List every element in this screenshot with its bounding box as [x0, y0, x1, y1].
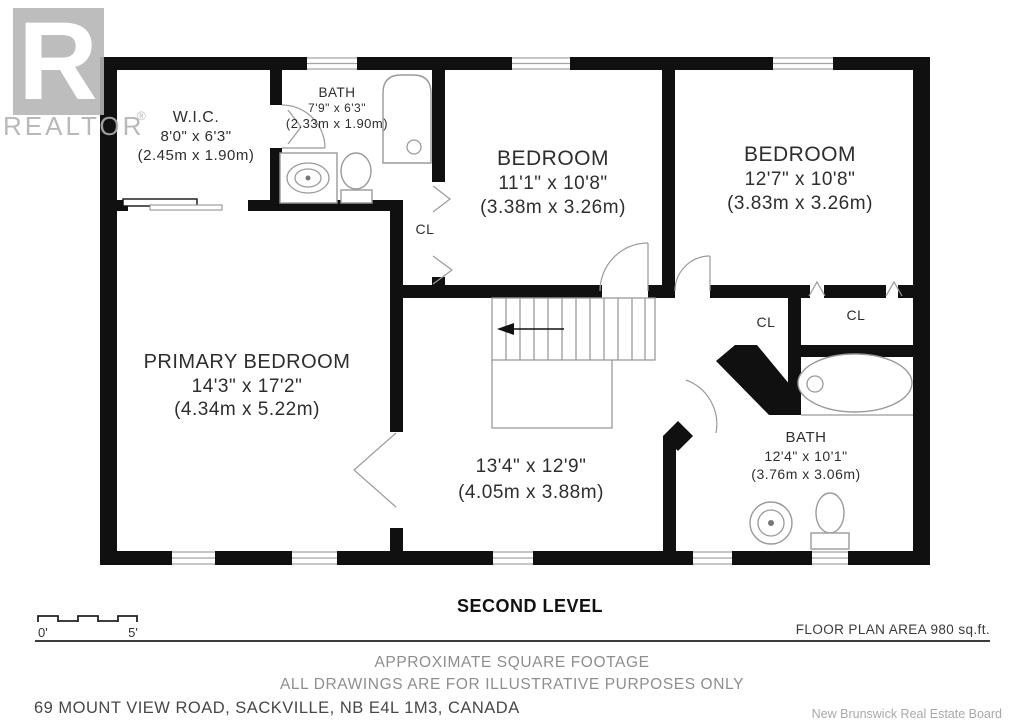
level-title: SECOND LEVEL [457, 596, 603, 616]
primary-imperial: 14'3" x 17'2" [192, 376, 303, 397]
room-label-primary: PRIMARY BEDROOM 14'3" x 17'2" (4.34m x 5… [144, 351, 351, 420]
bedroom-right-imperial: 12'7" x 10'8" [745, 169, 856, 190]
wic-imperial: 8'0" x 6'3" [160, 128, 231, 145]
toilet-top-icon [341, 153, 372, 203]
bedroom-mid-metric: (3.38m x 3.26m) [480, 197, 626, 218]
room-label-bath-top: BATH 7'9" x 6'3" (2.33m x 1.90m) [286, 85, 388, 131]
bedroom-mid-name: BEDROOM [497, 147, 609, 170]
closet-label: CL [416, 221, 435, 237]
sink-main-icon [750, 502, 792, 544]
hall-metric: (4.05m x 3.88m) [458, 482, 604, 503]
sink-top-icon [280, 153, 337, 203]
wic-metric: (2.45m x 1.90m) [138, 147, 255, 164]
sliding-door-icon [123, 199, 222, 210]
room-label-bedroom-right: BEDROOM 12'7" x 10'8" (3.83m x 3.26m) [727, 143, 873, 214]
closet-door-chevron [433, 186, 450, 212]
bath-main-door-arc [686, 380, 717, 433]
bathtub-top-icon [383, 75, 431, 163]
bathtub-main-icon [798, 354, 913, 415]
primary-metric: (4.34m x 5.22m) [174, 399, 320, 420]
wic-name: W.I.C. [173, 109, 220, 126]
bedroom-right-name: BEDROOM [744, 143, 856, 166]
bath-main-metric: (3.76m x 3.06m) [751, 466, 860, 482]
hall-imperial: 13'4" x 12'9" [476, 456, 587, 477]
bedroom-right-door-arc [675, 256, 710, 291]
scale-bar: 0' 5' [38, 616, 138, 640]
bath-main-name: BATH [786, 429, 827, 446]
closet-label: CL [757, 314, 776, 330]
primary-door-chevron [354, 433, 396, 507]
scale-end-label: 5' [128, 625, 138, 640]
scale-start-label: 0' [38, 625, 48, 640]
room-label-wic: W.I.C. 8'0" x 6'3" (2.45m x 1.90m) [138, 109, 255, 164]
bath-main-imperial: 12'4" x 10'1" [764, 448, 847, 464]
property-address: 69 MOUNT VIEW ROAD, SACKVILLE, NB E4L 1M… [34, 699, 520, 717]
realtor-logo: R REALTOR ® [3, 0, 146, 141]
bath-top-metric: (2.33m x 1.90m) [286, 116, 388, 131]
toilet-main-icon [811, 493, 849, 549]
floor-plan-canvas: W.I.C. 8'0" x 6'3" (2.45m x 1.90m) BATH … [0, 0, 1024, 722]
angled-wall [716, 345, 800, 415]
realtor-logo-text: REALTOR [3, 111, 144, 141]
stairs-icon [492, 298, 655, 428]
room-label-bath-main: BATH 12'4" x 10'1" (3.76m x 3.06m) [751, 429, 860, 482]
room-label-hall: 13'4" x 12'9" (4.05m x 3.88m) [458, 456, 604, 503]
attribution: New Brunswick Real Estate Board [812, 707, 1002, 721]
bedroom-mid-door-arc [600, 243, 648, 291]
bedroom-mid-imperial: 11'1" x 10'8" [498, 173, 607, 194]
closet-label: CL [847, 307, 866, 323]
floor-area-label: FLOOR PLAN AREA 980 sq.ft. [796, 622, 990, 637]
disclaimer-line2: ALL DRAWINGS ARE FOR ILLUSTRATIVE PURPOS… [280, 676, 744, 693]
bath-top-name: BATH [318, 85, 355, 100]
disclaimer-line1: APPROXIMATE SQUARE FOOTAGE [374, 654, 649, 671]
realtor-logo-letter: R [18, 0, 97, 123]
registered-mark: ® [137, 109, 146, 123]
room-label-bedroom-mid: BEDROOM 11'1" x 10'8" (3.38m x 3.26m) [480, 147, 626, 218]
bedroom-right-metric: (3.83m x 3.26m) [727, 193, 873, 214]
closet-door-chevron [809, 282, 825, 296]
bath-top-imperial: 7'9" x 6'3" [308, 101, 366, 115]
primary-name: PRIMARY BEDROOM [144, 351, 351, 373]
